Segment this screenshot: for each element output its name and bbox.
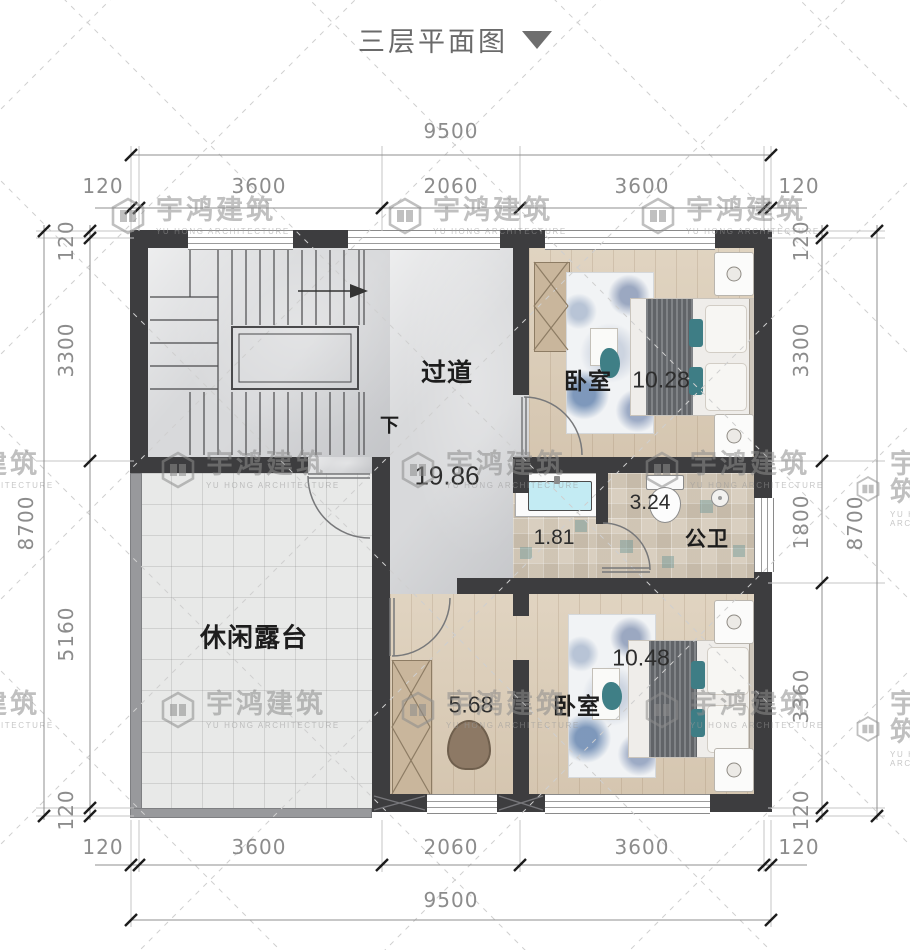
dim-top-total: 9500 [424,119,479,143]
dim-left-0: 120 [54,220,78,261]
lamp-icon [727,429,742,444]
pillow [707,705,749,753]
watermark-text-en: YU HONG ARCHITECTURE [890,510,910,528]
accent-pillow [691,661,705,689]
lamp-icon [727,763,742,778]
wall-stair-terrace [130,457,308,473]
wall-pier [513,457,529,493]
tile-accent [733,545,745,557]
parapet-bottom [130,808,372,818]
floor-hallway [390,248,529,594]
parapet-left [130,473,142,818]
decor-bedroom-bottom [602,682,622,710]
wardrobe-study [392,660,432,796]
bed-blanket [646,299,693,415]
area-bedroom-bottom: 10.48 [612,645,670,672]
dim-top-3: 3600 [615,174,670,198]
tile-accent [620,540,633,553]
watermark-text-cn: 宇鸿建筑 [890,450,910,507]
label-stairs-down: 下 [380,411,400,438]
dim-bottom-1: 3600 [232,835,287,859]
watermark-text-cn: 宇鸿建筑 [0,690,54,718]
dim-bottom-2: 2060 [424,835,479,859]
area-bathroom: 3.24 [630,491,671,515]
dim-top-2: 2060 [424,174,479,198]
window-study [427,794,497,814]
floor-drain-icon [711,489,729,507]
area-study: 5.68 [449,692,494,719]
label-bedroom-bottom: 卧室 [553,687,601,721]
dim-bottom-3: 3600 [615,835,670,859]
tile-accent [575,520,587,532]
wall [500,230,545,248]
wall [293,230,348,248]
dim-top-4: 120 [778,174,819,198]
watermark-text-en: YU HONG ARCHITECTURE [0,481,54,490]
window-stairwell [188,230,293,250]
floor-plan-page: 三层平面图 [0,0,910,950]
tap-icon [554,476,560,484]
floor-terrace-doorway [308,457,372,473]
nightstand [714,600,754,644]
wall-bath-divider [596,473,608,524]
wall-bath-bedroom [457,578,754,594]
dim-bottom-total: 9500 [424,888,479,912]
watermark-logo-icon [854,709,882,749]
dim-right-2: 1800 [789,495,813,550]
dim-top-1: 3600 [232,174,287,198]
wall [497,794,545,812]
wall-hall-terrace [372,457,390,794]
dim-bottom-0: 120 [82,835,123,859]
dim-left-1: 3300 [54,323,78,378]
lamp-icon [727,267,742,282]
area-wash: 1.81 [534,526,575,550]
floor-selector[interactable]: 三层平面图 [0,20,910,59]
label-bedroom-top: 卧室 [564,362,612,396]
tile-accent [520,547,532,559]
watermark-text-cn: 宇鸿建筑 [0,450,54,478]
dim-right-0: 120 [789,220,813,261]
wall [372,794,427,812]
area-bedroom-top: 10.28 [632,367,690,394]
window-bedroom-top [545,230,715,250]
page-title: 三层平面图 [358,20,508,59]
sink-basin [528,481,592,511]
pillow [707,647,749,695]
nightstand [714,414,754,458]
watermark-text-cn: 宇鸿建筑 [890,690,910,747]
tile-accent [662,556,674,568]
watermark: 宇鸿建筑YU HONG ARCHITECTURE [0,690,54,730]
dim-left-3: 120 [54,789,78,830]
label-hallway: 过道 [421,353,473,389]
watermark-text-cn: 宇鸿建筑 [156,196,290,224]
area-hallway: 19.86 [414,461,479,492]
dim-right-total: 8700 [843,496,867,551]
dim-right-1: 3300 [789,323,813,378]
dim-left-2: 5160 [54,607,78,662]
dim-top-0: 120 [82,174,123,198]
wall-study-bedroom [513,660,529,794]
accent-pillow [689,367,703,395]
dropdown-triangle-icon [522,31,552,49]
wall-bedroom-bath [513,457,754,473]
label-bathroom: 公卫 [685,523,729,553]
pillow [705,363,747,411]
dim-left-total: 8700 [14,496,38,551]
lamp-icon [727,615,742,630]
window-bathroom [754,498,774,572]
accent-pillow [691,709,705,737]
bed-bedroom-top [630,298,756,416]
nightstand [714,748,754,792]
wall [710,794,772,812]
dim-right-3: 3360 [789,669,813,724]
watermark: 宇鸿建筑YU HONG ARCHITECTURE [854,690,910,768]
wall-stub [513,594,529,616]
window-bedroom-bottom [545,794,710,814]
pillow [705,305,747,353]
floor-stairwell [148,248,390,457]
dim-right-4: 120 [789,789,813,830]
dim-bottom-4: 120 [778,835,819,859]
watermark-text-en: YU HONG ARCHITECTURE [890,750,910,768]
wardrobe-bedroom-top [534,262,570,352]
watermark-text-en: YU HONG ARCHITECTURE [0,721,54,730]
accent-pillow [689,319,703,347]
label-terrace: 休闲露台 [200,618,308,655]
wall-hall-bedroom [513,248,529,395]
watermark-text-cn: 宇鸿建筑 [433,196,567,224]
wall-left [130,230,148,473]
window-hallway [348,230,500,250]
watermark: 宇鸿建筑YU HONG ARCHITECTURE [0,450,54,490]
nightstand [714,252,754,296]
